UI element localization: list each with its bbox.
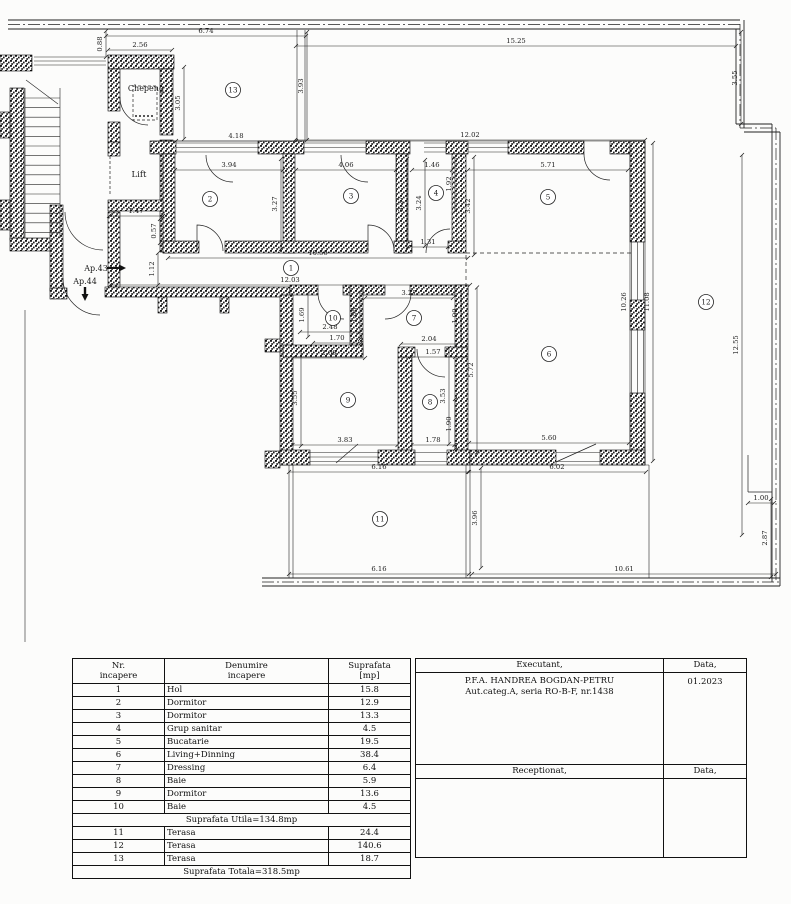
dimension: 3.83 [291, 436, 400, 447]
cell-area: 6.4 [329, 762, 411, 775]
plan-shape [448, 241, 466, 253]
plan-shape [470, 450, 556, 465]
total-row: Suprafata Totala=318.5mp [73, 866, 411, 879]
plan-shape: 1.47 [128, 207, 143, 215]
room-number: 13 [226, 83, 241, 98]
plan-shape: 10.26 [620, 292, 628, 311]
cell-area: 15.8 [329, 684, 411, 697]
cell-nr: 6 [73, 749, 165, 762]
table-row: 8 Baie 5.9 [73, 775, 411, 788]
plan-shape: 3.83 [337, 436, 352, 444]
executant-label: Executant, [416, 659, 664, 672]
dimension: 0.57 [150, 217, 162, 245]
dimension: 6.16 [287, 565, 471, 576]
table-row: 13 Terasa 18.7 [73, 853, 411, 866]
plan-shape: 1.31 [420, 238, 435, 246]
header-denumire: Denumireincapere [165, 659, 329, 684]
cell-area: 4.5 [329, 801, 411, 814]
cell-name: Dormitor [165, 697, 329, 710]
cell-nr: 4 [73, 723, 165, 736]
plan-shape: 3.27 [397, 196, 405, 211]
dimension: 1.90 [445, 397, 457, 451]
plan-shape [158, 297, 167, 313]
dimension: 1.00 [746, 494, 776, 505]
dimension: 15.25 [294, 37, 738, 48]
data-label: Data, [664, 659, 746, 672]
cell-area: 140.6 [329, 840, 411, 853]
subtotal-row-cell: Suprafata Utila=134.8mp [73, 814, 411, 827]
plan-shape: 3.96 [471, 510, 479, 525]
plan-shape [584, 154, 610, 180]
dimension: 0.88 [96, 29, 108, 59]
cell-name: Dressing [165, 762, 329, 775]
plan-shape [265, 451, 280, 468]
room-number: 1 [284, 261, 299, 276]
plan-shape: 5 [546, 193, 551, 202]
table-row: 3 Dormitor 13.3 [73, 710, 411, 723]
plan-shape [108, 212, 120, 288]
cell-nr: 8 [73, 775, 165, 788]
dimension: 3.94 [173, 161, 285, 172]
cell-nr: 9 [73, 788, 165, 801]
arrow-down-icon [82, 287, 89, 301]
room-label: Lift [132, 170, 148, 180]
plan-shape [225, 241, 368, 253]
plan-shape: 1.78 [425, 436, 440, 444]
plan-shape: 1.00 [753, 494, 768, 502]
plan-shape: 10.56 [308, 249, 327, 257]
cell-area: 12.9 [329, 697, 411, 710]
plan-shape: 3.55 [291, 390, 299, 405]
room-number: 12 [699, 295, 714, 310]
plan-shape: 6.74 [198, 27, 213, 35]
plan-shape [163, 154, 175, 253]
plan-shape [160, 69, 173, 135]
plan-shape [108, 122, 120, 142]
plan-shape: 10 [328, 314, 338, 323]
date-value: 01.2023 [664, 673, 746, 764]
plan-shape: 6.02 [549, 463, 564, 471]
dimension: 6.16 [287, 463, 471, 474]
plan-shape [108, 55, 174, 69]
dimension: 2.87 [761, 497, 773, 579]
room-number: 3 [344, 189, 359, 204]
cell-name: Baie [165, 801, 329, 814]
dimension: 1.31 [406, 238, 450, 249]
table-row: 11 Terasa 24.4 [73, 827, 411, 840]
plan-shape: 2.60 [321, 349, 336, 357]
executant-info: P.F.A. HANDREA BOGDAN-PETRU Aut.categ.A,… [416, 673, 664, 764]
cell-area: 4.5 [329, 723, 411, 736]
plan-shape: 1.57 [425, 348, 440, 356]
plan-shape [108, 69, 120, 111]
table-row: 2 Dormitor 12.9 [73, 697, 411, 710]
room-label: Chepeng [128, 84, 164, 93]
cell-area: 19.5 [329, 736, 411, 749]
plan-shape: 1.12 [148, 261, 156, 276]
table-row: 9 Dormitor 13.6 [73, 788, 411, 801]
room-number: 7 [407, 311, 422, 326]
plan-shape [452, 154, 466, 242]
plan-shape: 0.88 [96, 36, 104, 51]
plan-shape: 10.61 [614, 565, 633, 573]
area-table: Nr.incapere Denumireincapere Suprafata[m… [72, 658, 410, 879]
dimension: 10.61 [470, 565, 778, 576]
plan-shape [630, 141, 645, 242]
dashed-lines [110, 86, 632, 285]
dimension: 1.78 [410, 436, 457, 447]
plan-shape: 3.05 [174, 95, 182, 110]
room-label: Ap.43 [83, 264, 108, 273]
cell-nr: 1 [73, 684, 165, 697]
plan-shape [82, 294, 89, 301]
plan-shape [105, 287, 290, 297]
plan-shape [280, 450, 310, 465]
plan-shape: 3 [349, 192, 354, 201]
subtotal-row: Suprafata Utila=134.8mp [73, 814, 411, 827]
plan-shape [508, 141, 584, 154]
plan-shape: 4.06 [338, 161, 353, 169]
plan-shape [265, 339, 280, 352]
plan-shape [119, 265, 126, 272]
room-number: 8 [423, 395, 438, 410]
header-suprafata: Suprafata[mp] [329, 659, 411, 684]
table-row: 7 Dressing 6.4 [73, 762, 411, 775]
cell-area: 38.4 [329, 749, 411, 762]
plan-shape: 12 [701, 298, 710, 307]
room-number: 9 [341, 393, 356, 408]
plan-shape [258, 141, 304, 154]
plan-shape: 11.08 [643, 292, 651, 311]
plan-shape [0, 55, 32, 71]
dimension: 10.56 [166, 249, 470, 260]
plan-shape: 4.18 [228, 132, 243, 140]
walls [0, 55, 645, 468]
dimension: 3.05 [174, 65, 186, 141]
executant-name: P.F.A. HANDREA BOGDAN-PETRU [416, 676, 663, 687]
dimension: 1.92 [445, 155, 457, 213]
plan-shape: 2.04 [421, 335, 436, 343]
plan-shape [600, 450, 645, 465]
cell-name: Living+Dinning [165, 749, 329, 762]
receptionat-date-space [664, 779, 746, 857]
plan-shape [366, 141, 410, 154]
cell-nr: 5 [73, 736, 165, 749]
plan-shape: 11 [375, 515, 384, 524]
receptionat-label: Receptionat, [416, 765, 664, 778]
dimension: 3.24 [415, 158, 427, 248]
dimension: 5.60 [467, 434, 631, 445]
plan-shape: 6.16 [371, 565, 386, 573]
table-row: 12 Terasa 140.6 [73, 840, 411, 853]
plan-shape: 1.69 [298, 307, 306, 322]
plan-shape: 9 [346, 396, 351, 405]
cell-nr: 11 [73, 827, 165, 840]
plan-shape [150, 141, 176, 154]
cell-name: Bucatarie [165, 736, 329, 749]
plan-shape: 15.25 [506, 37, 525, 45]
dimensions: 6.7415.252.564.1812.023.944.061.465.711.… [96, 27, 778, 579]
plan-shape [363, 285, 385, 295]
plan-shape: 3.93 [297, 78, 305, 93]
area-table-header: Nr.incapere Denumireincapere Suprafata[m… [73, 659, 411, 684]
plan-shape: 2.56 [132, 41, 147, 49]
dimension: 3.96 [471, 466, 483, 570]
plan-shape: 0.57 [150, 223, 158, 238]
plan-shape [398, 357, 412, 457]
cell-name: Terasa [165, 827, 329, 840]
receptionat-signature-space [416, 779, 664, 857]
plan-shape [283, 154, 295, 253]
cell-name: Dormitor [165, 788, 329, 801]
plan-shape [50, 205, 63, 291]
dimension: 12.55 [732, 153, 744, 537]
plan-shape [446, 141, 468, 154]
dimension: 3.93 [297, 30, 309, 142]
table-row: 6 Living+Dinning 38.4 [73, 749, 411, 762]
room-number: 2 [203, 192, 218, 207]
plan-shape [556, 444, 596, 462]
cell-nr: 13 [73, 853, 165, 866]
plan-shape [0, 200, 10, 230]
data-label-2: Data, [664, 765, 746, 778]
plan-shape: 3.53 [439, 388, 447, 403]
plan-shape: 7 [412, 314, 417, 323]
plan-shape: 2 [208, 195, 213, 204]
dimension: 5.71 [466, 161, 630, 172]
cell-name: Grup sanitar [165, 723, 329, 736]
floorplan-sheet: { "plan": { "labels": [ {"t":"Chepeng","… [0, 0, 791, 904]
dimension: 2.56 [106, 41, 174, 52]
dimension: 1.12 [148, 251, 160, 287]
cell-name: Hol [165, 684, 329, 697]
plan-shape [10, 88, 24, 240]
room-number: 11 [373, 512, 388, 527]
plan-shape: 3.27 [401, 289, 416, 297]
cell-nr: 2 [73, 697, 165, 710]
cell-nr: 12 [73, 840, 165, 853]
table-row: 4 Grup sanitar 4.5 [73, 723, 411, 736]
plan-shape [368, 225, 394, 251]
plan-shape: 1.70 [329, 334, 344, 342]
plan-shape [280, 295, 293, 465]
cell-area: 18.7 [329, 853, 411, 866]
cell-area: 24.4 [329, 827, 411, 840]
dimension: 10.26 [620, 150, 632, 454]
plan-shape: 8 [428, 398, 433, 407]
plan-shape [108, 142, 120, 156]
room-label: Ap.44 [72, 277, 97, 286]
plan-shape: 1.88 [350, 307, 358, 322]
plan-shape: 1.92 [445, 176, 453, 191]
plan-shape [163, 241, 199, 253]
dimension: 2.04 [399, 335, 459, 346]
plan-shape [336, 444, 358, 463]
dimension: 12.02 [293, 131, 647, 142]
room-number: 10 [326, 311, 341, 326]
plan-shape: 5.60 [541, 434, 556, 442]
plan-shape [447, 450, 470, 465]
cell-name: Dormitor [165, 710, 329, 723]
plan-shape: 13 [228, 86, 238, 95]
plan-shape: 3.94 [221, 161, 236, 169]
plan-shape: 3.27 [271, 196, 279, 211]
plan-shape: 2.87 [761, 530, 769, 545]
table-row: 1 Hol 15.8 [73, 684, 411, 697]
floor-plan: 6.7415.252.564.1812.023.944.061.465.711.… [0, 0, 791, 648]
plan-shape: 3.24 [415, 195, 423, 210]
executant-details: Aut.categ.A, seria RO-B-F, nr.1438 [416, 687, 663, 698]
dimension: 3.27 [271, 157, 283, 251]
table-row: 10 Baie 4.5 [73, 801, 411, 814]
plan-shape [0, 112, 10, 138]
cell-nr: 3 [73, 710, 165, 723]
plan-shape [120, 97, 148, 125]
room-number: 6 [542, 347, 557, 362]
plan-shape: 1.90 [451, 308, 459, 323]
plan-shape [197, 225, 223, 251]
cell-name: Terasa [165, 853, 329, 866]
plan-shape: 5.72 [467, 362, 475, 377]
plan-shape [290, 285, 318, 295]
plan-shape: 6.16 [371, 463, 386, 471]
dimension: 5.72 [467, 286, 479, 455]
cell-area: 5.9 [329, 775, 411, 788]
plan-shape: 3.42 [464, 198, 472, 213]
cell-nr: 7 [73, 762, 165, 775]
cell-area: 13.6 [329, 788, 411, 801]
plan-shape [65, 212, 103, 250]
room-number: 5 [541, 190, 556, 205]
plan-shape [26, 80, 58, 104]
plan-shape: 12.02 [460, 131, 479, 139]
plan-shape: 4 [434, 189, 439, 198]
header-nr: Nr.incapere [73, 659, 165, 684]
total-row-cell: Suprafata Totala=318.5mp [73, 866, 411, 879]
plan-shape: 1 [289, 264, 294, 273]
cell-area: 13.3 [329, 710, 411, 723]
plan-shape: 5.71 [540, 161, 555, 169]
plan-shape [220, 297, 229, 313]
title-block: Executant, Data, P.F.A. HANDREA BOGDAN-P… [415, 658, 747, 858]
dimension: 1.46 [410, 161, 454, 172]
cell-nr: 10 [73, 801, 165, 814]
plan-shape: 6 [547, 350, 552, 359]
plan-shape: 3.55 [731, 70, 739, 85]
dimension: 3.55 [731, 30, 743, 126]
property-boundary [8, 20, 780, 586]
plan-shape: 1.90 [445, 416, 453, 431]
cell-name: Baie [165, 775, 329, 788]
room-number: 4 [429, 186, 444, 201]
table-row: 5 Bucatarie 19.5 [73, 736, 411, 749]
plan-shape: 1.46 [424, 161, 439, 169]
plan-shape: 12.55 [732, 335, 740, 354]
cell-name: Terasa [165, 840, 329, 853]
plan-shape: 12.03 [280, 276, 299, 284]
